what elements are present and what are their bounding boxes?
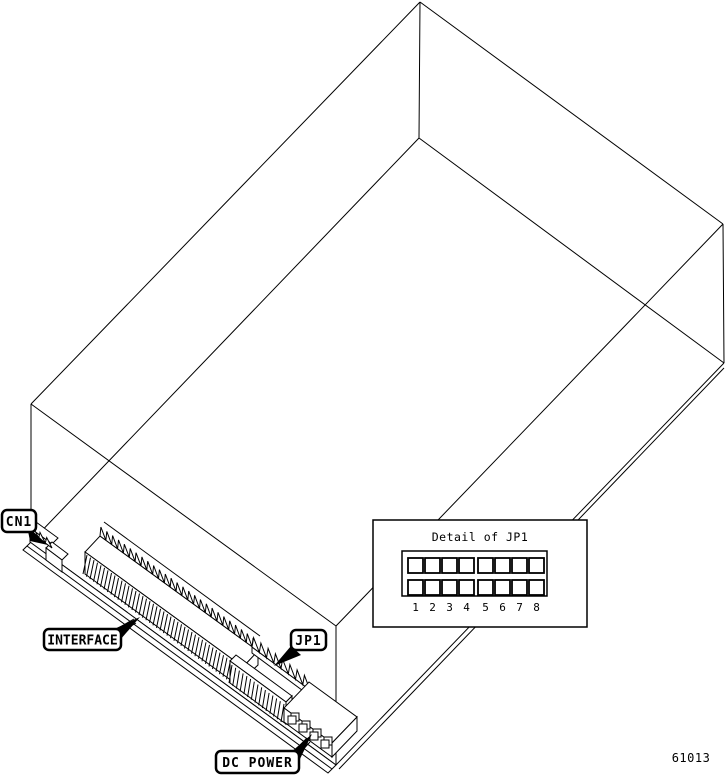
jp1-label: JP1: [295, 634, 321, 649]
jp1-pin-square: [512, 558, 527, 573]
jp1-pin-square: [529, 580, 544, 595]
jp1-pin-square: [512, 580, 527, 595]
jp1-pin-square: [442, 558, 457, 573]
dc-pin: [310, 732, 318, 740]
interface-label: INTERFACE: [47, 634, 117, 649]
drive-isometric-diagram: Detail of JP1 12345678 CN1 INTERFACE JP1…: [0, 0, 727, 776]
detail-inset-title: Detail of JP1: [432, 530, 529, 544]
jp1-pin-square: [408, 580, 423, 595]
jp1-pin-square: [495, 558, 510, 573]
callout-jp1: JP1: [274, 630, 326, 666]
chassis-wireframe: [31, 2, 724, 769]
jp1-pin-square: [408, 558, 423, 573]
jp1-pin-square: [478, 558, 493, 573]
dc-pin: [321, 740, 329, 748]
pin-number: 5: [482, 601, 489, 614]
dc-power-label: DC POWER: [222, 756, 293, 771]
pin-number: 3: [446, 601, 453, 614]
pin-number: 2: [429, 601, 436, 614]
cn1-label: CN1: [6, 515, 32, 530]
figure-number: 61013: [672, 751, 711, 765]
pin-number: 4: [463, 601, 470, 614]
jp1-pin-square: [425, 558, 440, 573]
dc-pin: [299, 724, 307, 732]
chassis-edges: [31, 2, 724, 769]
jp1-pin-square: [529, 558, 544, 573]
jp1-pin-square: [442, 580, 457, 595]
pin-number: 8: [533, 601, 540, 614]
jp1-pin-square: [459, 580, 474, 595]
pin-number: 7: [516, 601, 523, 614]
jp1-pin-square: [425, 580, 440, 595]
jp1-pin-square: [478, 580, 493, 595]
detail-inset: Detail of JP1 12345678: [373, 520, 587, 627]
diagram-page: Detail of JP1 12345678 CN1 INTERFACE JP1…: [0, 0, 727, 776]
jp1-pin-square: [459, 558, 474, 573]
jp1-pin-square: [495, 580, 510, 595]
pin-number: 6: [499, 601, 506, 614]
pin-number: 1: [412, 601, 419, 614]
dc-pin: [288, 716, 296, 724]
